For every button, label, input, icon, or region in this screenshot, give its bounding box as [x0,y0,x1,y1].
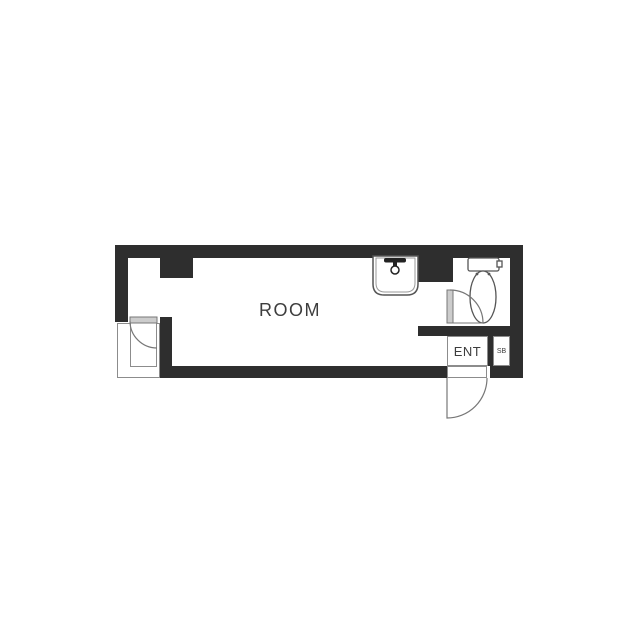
balcony-door-swing-icon [130,317,157,348]
entrance-door-swing-icon [447,378,487,418]
entrance-label: ENT [447,336,488,366]
floorplan: ROOM ENT SB [0,0,640,640]
room-label: ROOM [240,299,340,321]
sink-icon [373,256,418,295]
shoebox-label: SB [493,336,510,366]
toilet-icon [468,258,502,323]
